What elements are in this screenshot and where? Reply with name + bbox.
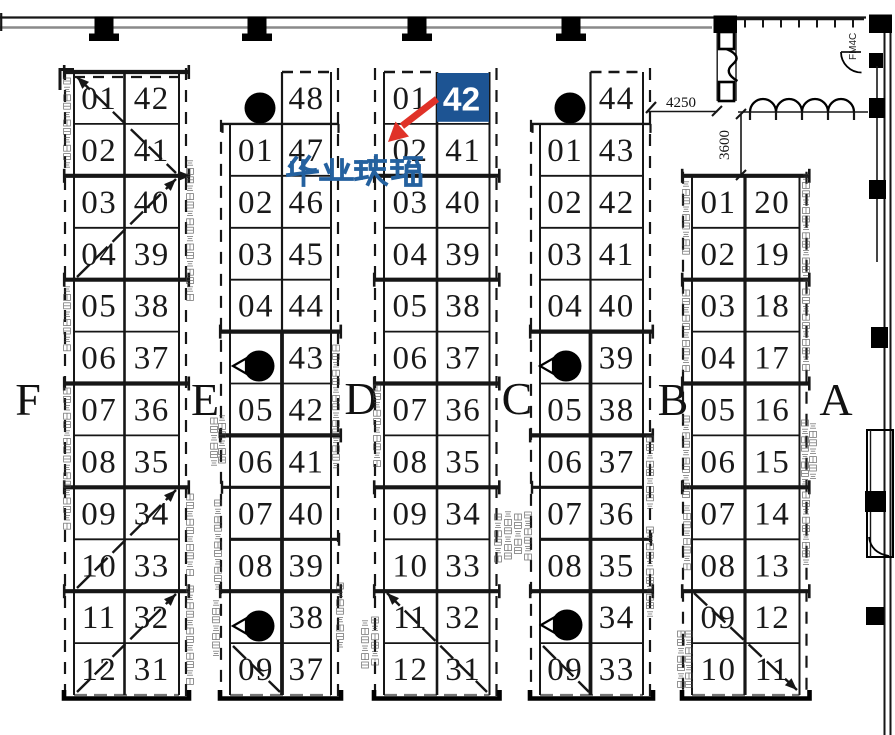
svg-text:40: 40 [599,289,635,325]
svg-text:C: C [502,373,533,424]
svg-text:08: 08 [393,444,429,480]
svg-text:03: 03 [547,237,583,273]
svg-text:FM4C: FM4C [848,33,859,60]
svg-text:05: 05 [547,393,583,429]
svg-text:37: 37 [599,444,635,480]
svg-text:A: A [819,374,852,425]
svg-text:48: 48 [289,81,325,117]
svg-text:40: 40 [289,496,325,532]
svg-text:12: 12 [754,600,790,636]
svg-text:08: 08 [547,548,583,584]
svg-text:38: 38 [445,289,481,325]
svg-text:46: 46 [289,185,325,221]
svg-text:07: 07 [393,393,429,429]
svg-text:41: 41 [445,133,481,169]
svg-text:03: 03 [81,185,117,221]
svg-text:11: 11 [755,652,790,688]
svg-text:01: 01 [547,133,583,169]
svg-text:08: 08 [238,548,274,584]
svg-text:38: 38 [599,393,635,429]
svg-text:44: 44 [599,81,635,117]
svg-text:33: 33 [445,548,481,584]
svg-text:38: 38 [289,600,325,636]
svg-text:36: 36 [134,393,170,429]
svg-text:36: 36 [599,496,635,532]
svg-text:3600: 3600 [717,130,733,160]
svg-text:05: 05 [238,393,274,429]
svg-text:13: 13 [754,548,790,584]
svg-text:43: 43 [599,133,635,169]
svg-text:42: 42 [289,393,325,429]
svg-text:06: 06 [238,444,274,480]
svg-text:35: 35 [599,548,635,584]
svg-text:01: 01 [701,185,737,221]
svg-text:03: 03 [701,289,737,325]
svg-text:D: D [344,373,377,424]
svg-text:35: 35 [134,444,170,480]
svg-text:06: 06 [701,444,737,480]
svg-text:04: 04 [547,289,583,325]
svg-text:15: 15 [754,444,790,480]
svg-text:11: 11 [82,600,117,636]
svg-text:06: 06 [81,341,117,377]
svg-text:41: 41 [599,237,635,273]
svg-text:09: 09 [393,496,429,532]
svg-text:19: 19 [754,237,790,273]
svg-text:04: 04 [701,341,737,377]
svg-text:33: 33 [599,652,635,688]
svg-text:F: F [15,374,41,425]
svg-text:37: 37 [445,341,481,377]
svg-text:10: 10 [701,652,737,688]
svg-text:03: 03 [238,237,274,273]
svg-text:B: B [658,374,689,425]
svg-text:17: 17 [754,341,790,377]
svg-text:16: 16 [754,393,790,429]
svg-text:31: 31 [134,652,170,688]
svg-text:05: 05 [81,289,117,325]
svg-text:04: 04 [393,237,429,273]
svg-text:09: 09 [81,496,117,532]
svg-text:02: 02 [238,185,274,221]
svg-text:4250: 4250 [666,95,696,111]
svg-text:44: 44 [289,289,325,325]
svg-text:39: 39 [599,341,635,377]
svg-text:02: 02 [81,133,117,169]
svg-text:45: 45 [289,237,325,273]
svg-text:01: 01 [238,133,274,169]
svg-text:36: 36 [445,393,481,429]
svg-text:09: 09 [547,652,583,688]
svg-text:39: 39 [445,237,481,273]
svg-text:34: 34 [599,600,635,636]
svg-text:37: 37 [289,652,325,688]
svg-text:08: 08 [81,444,117,480]
svg-text:14: 14 [754,496,790,532]
svg-text:02: 02 [701,237,737,273]
svg-text:06: 06 [393,341,429,377]
svg-text:12: 12 [393,652,429,688]
svg-text:41: 41 [289,444,325,480]
svg-text:07: 07 [81,393,117,429]
svg-text:39: 39 [289,548,325,584]
svg-text:E: E [191,374,219,425]
svg-text:43: 43 [289,341,325,377]
svg-text:42: 42 [599,185,635,221]
svg-text:05: 05 [701,393,737,429]
svg-text:07: 07 [238,496,274,532]
svg-text:32: 32 [445,600,481,636]
svg-text:10: 10 [393,548,429,584]
svg-text:08: 08 [701,548,737,584]
svg-text:33: 33 [134,548,170,584]
svg-text:40: 40 [445,185,481,221]
svg-text:20: 20 [754,185,790,221]
svg-text:37: 37 [134,341,170,377]
svg-text:39: 39 [134,237,170,273]
svg-text:03: 03 [393,185,429,221]
svg-text:05: 05 [393,289,429,325]
svg-text:07: 07 [547,496,583,532]
svg-text:04: 04 [238,289,274,325]
svg-text:06: 06 [547,444,583,480]
svg-text:42: 42 [134,81,170,117]
svg-text:02: 02 [547,185,583,221]
svg-text:07: 07 [701,496,737,532]
svg-text:42: 42 [443,82,480,119]
svg-text:34: 34 [445,496,481,532]
svg-text:38: 38 [134,289,170,325]
svg-text:35: 35 [445,444,481,480]
svg-text:18: 18 [754,289,790,325]
